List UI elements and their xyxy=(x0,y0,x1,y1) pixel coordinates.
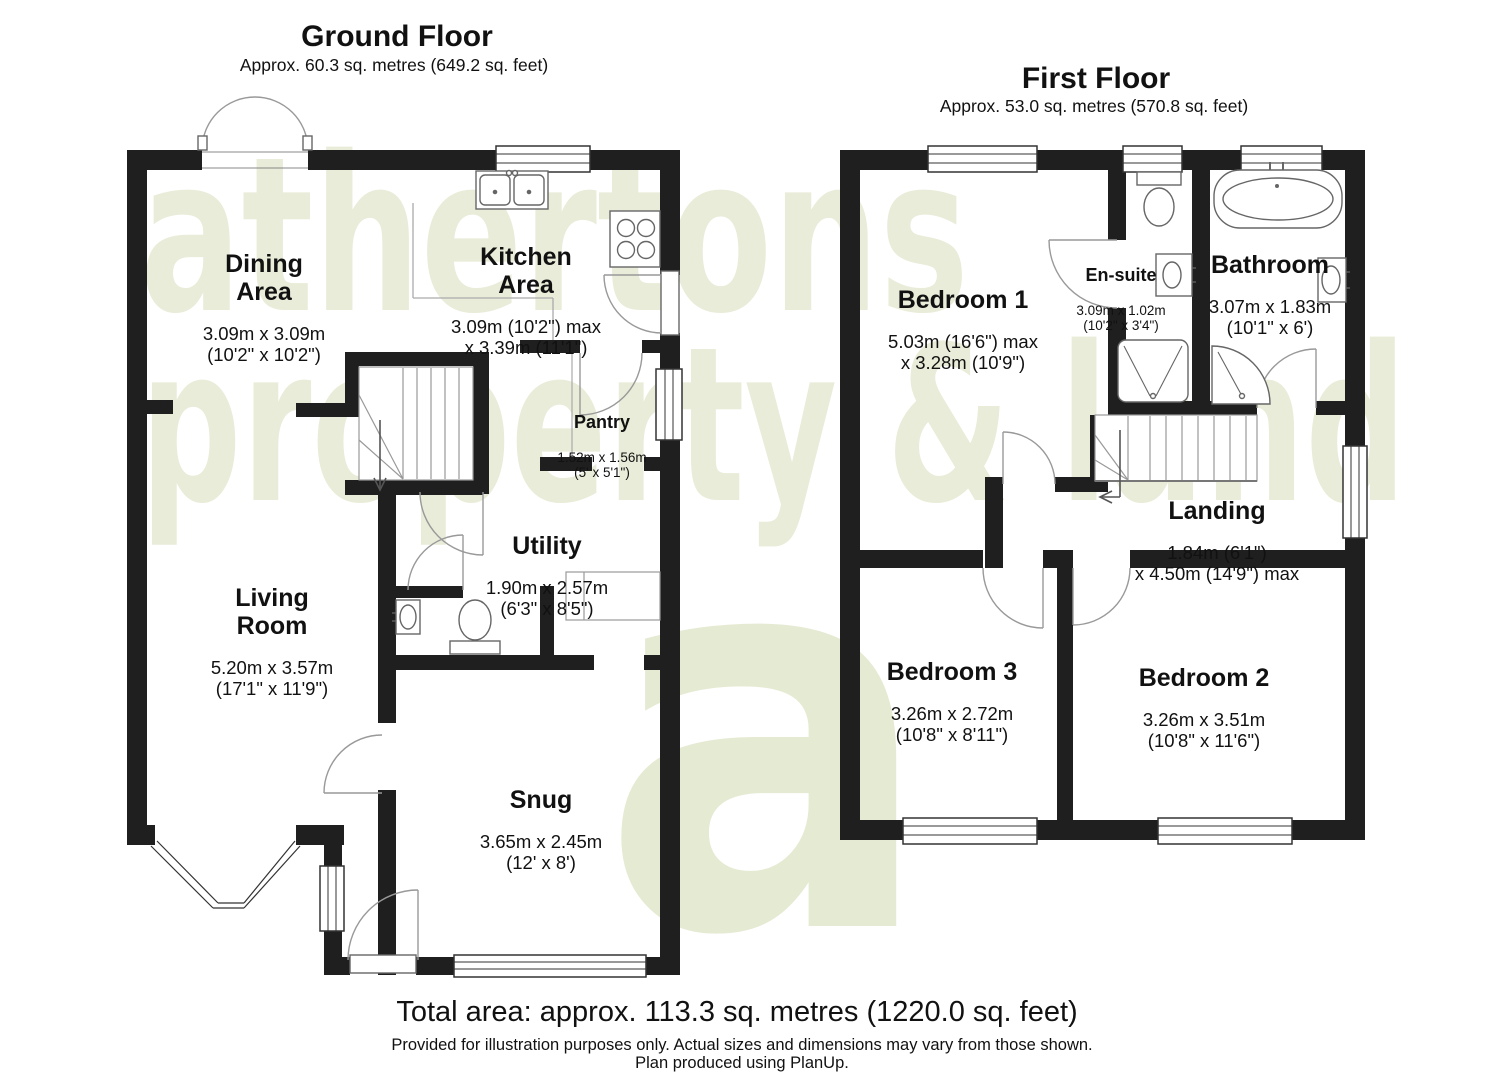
ensuite-window xyxy=(1123,146,1182,172)
living-snug-door xyxy=(324,735,382,793)
room-dims: 3.09m x 3.09m (10'2" x 10'2") xyxy=(203,324,325,365)
room-name: Pantry xyxy=(557,412,646,432)
first-floor-subtitle: Approx. 53.0 sq. metres (570.8 sq. feet) xyxy=(940,96,1248,117)
ground-floor-title: Ground Floor xyxy=(301,20,493,54)
room-name: Landing xyxy=(1135,497,1299,525)
floorplan-page: { "watermark": { "line1": "athertons", "… xyxy=(0,0,1485,1080)
bedroom2-door xyxy=(1073,568,1130,625)
pantry-window xyxy=(656,369,682,440)
bedroom2-window xyxy=(1158,818,1292,844)
landing-window xyxy=(1343,446,1367,538)
kitchen-window xyxy=(496,146,590,172)
first-floor-title: First Floor xyxy=(1022,62,1170,96)
ensuite-toilet xyxy=(1137,172,1181,226)
room-label-bedroom2: Bedroom 2 3.26m x 3.51m (10'8" x 11'6") xyxy=(1139,646,1270,769)
room-label-ensuite: En-suite 3.09m x 1.02m (10'2" x 3'4") xyxy=(1076,247,1165,351)
room-dims: 3.26m x 3.51m (10'8" x 11'6") xyxy=(1139,710,1270,751)
room-dims: 3.26m x 2.72m (10'8" x 8'11") xyxy=(887,704,1018,745)
room-name: Snug xyxy=(480,786,602,814)
disclaimer-text: Provided for illustration purposes only.… xyxy=(391,1036,1092,1055)
room-name: Utility xyxy=(486,532,608,560)
bathroom-window xyxy=(1241,146,1322,172)
room-name: Bedroom 1 xyxy=(888,286,1038,314)
room-name: Bathroom xyxy=(1209,251,1331,279)
room-name: Dining Area xyxy=(203,250,325,306)
bedroom1-window xyxy=(928,146,1037,172)
room-dims: 5.03m (16'6") max x 3.28m (10'9") xyxy=(888,332,1038,373)
room-label-bedroom1: Bedroom 1 5.03m (16'6") max x 3.28m (10'… xyxy=(888,268,1038,391)
room-dims: 1.84m (6'1") x 4.50m (14'9") max xyxy=(1135,543,1299,584)
room-label-utility: Utility 1.90m x 2.57m (6'3" x 8'5") xyxy=(486,514,608,637)
room-name: Kitchen Area xyxy=(451,243,601,299)
wc-door xyxy=(408,535,463,590)
room-label-kitchen: Kitchen Area 3.09m (10'2") max x 3.39m (… xyxy=(451,225,601,376)
room-name: Living Room xyxy=(211,584,333,640)
room-dims: 1.90m x 2.57m (6'3" x 8'5") xyxy=(486,578,608,619)
room-label-snug: Snug 3.65m x 2.45m (12' x 8') xyxy=(480,768,602,891)
room-label-bedroom3: Bedroom 3 3.26m x 2.72m (10'8" x 8'11") xyxy=(887,640,1018,763)
bay-window xyxy=(151,841,300,908)
room-dims: 3.09m (10'2") max x 3.39m (11'1") xyxy=(451,317,601,358)
french-doors xyxy=(198,97,312,168)
room-dims: 3.65m x 2.45m (12' x 8') xyxy=(480,832,602,873)
room-label-landing: Landing 1.84m (6'1") x 4.50m (14'9") max xyxy=(1135,479,1299,602)
room-name: Bedroom 3 xyxy=(887,658,1018,686)
total-area-text: Total area: approx. 113.3 sq. metres (12… xyxy=(396,996,1077,1029)
bedroom3-window xyxy=(903,818,1037,844)
room-dims: 3.07m x 1.83m (10'1" x 6') xyxy=(1209,297,1331,338)
room-dims: 5.20m x 3.57m (17'1" x 11'9") xyxy=(211,658,333,699)
room-dims: 1.52m x 1.56m (5' x 5'1") xyxy=(557,450,646,480)
ground-floor-stairs xyxy=(359,367,473,490)
wc-basin xyxy=(392,600,420,634)
bathtub xyxy=(1214,162,1342,228)
bedroom3-door xyxy=(983,568,1043,628)
room-label-dining: Dining Area 3.09m x 3.09m (10'2" x 10'2"… xyxy=(203,232,325,383)
snug-window xyxy=(454,955,646,977)
room-dims: 3.09m x 1.02m (10'2" x 3'4") xyxy=(1076,303,1165,333)
bedroom1-door xyxy=(1003,432,1055,484)
room-label-bathroom: Bathroom 3.07m x 1.83m (10'1" x 6') xyxy=(1209,233,1331,356)
room-name: En-suite xyxy=(1076,265,1165,285)
hob xyxy=(610,211,660,267)
room-label-living: Living Room 5.20m x 3.57m (17'1" x 11'9"… xyxy=(211,566,333,717)
ground-floor-subtitle: Approx. 60.3 sq. metres (649.2 sq. feet) xyxy=(240,55,548,76)
hall-window xyxy=(320,866,344,931)
room-name: Bedroom 2 xyxy=(1139,664,1270,692)
room-label-pantry: Pantry 1.52m x 1.56m (5' x 5'1") xyxy=(557,394,646,498)
kitchen-side-door xyxy=(604,271,679,335)
produced-by-text: Plan produced using PlanUp. xyxy=(635,1054,849,1073)
kitchen-sink xyxy=(476,171,548,210)
